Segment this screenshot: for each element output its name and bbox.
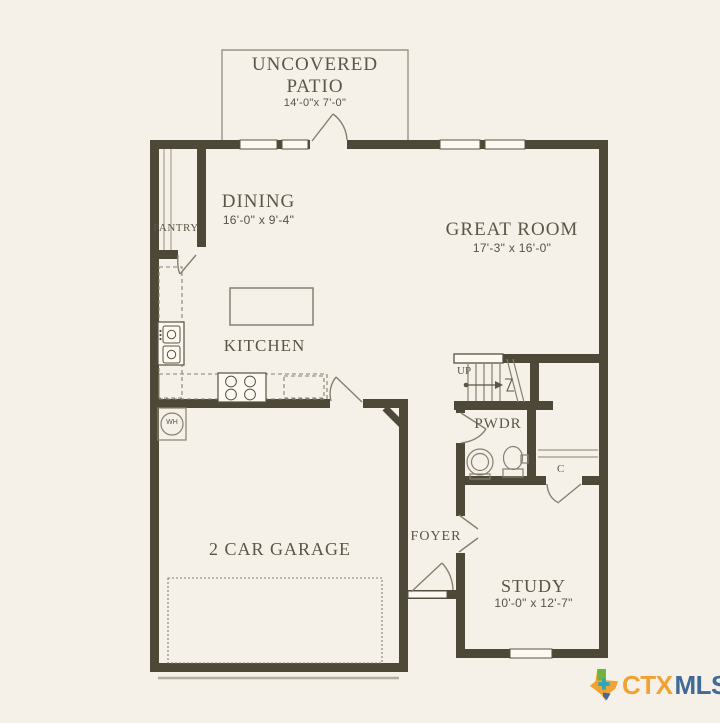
- dining-window: [240, 140, 277, 149]
- patio-dims: 14'-0"x 7'-0": [225, 97, 405, 109]
- foyer-label: FOYER: [398, 529, 474, 546]
- study-dims: 10'-0" x 12'-7": [461, 596, 606, 610]
- greatroom-window-2: [485, 140, 525, 149]
- powder-fixtures: [467, 447, 528, 480]
- stove: [218, 373, 266, 402]
- closet-shelves: [538, 450, 598, 457]
- dining-window-2: [282, 140, 308, 149]
- dining-dims: 16'-0" x 9'-4": [181, 213, 336, 227]
- dining-label: DINING: [181, 191, 336, 213]
- study-window: [510, 649, 552, 658]
- front-door-sill: [408, 591, 447, 598]
- greatroom-window: [440, 140, 480, 149]
- stair-half-wall: [454, 354, 503, 363]
- pantry-door: [178, 255, 196, 274]
- great-room-label: GREAT ROOM: [427, 219, 597, 241]
- floor-plan-page: UNCOVERED PATIO 14'-0"x 7'-0" DINING 16'…: [0, 0, 720, 723]
- front-door: [411, 563, 453, 592]
- up-arrow: [464, 379, 514, 391]
- logo-text-ctx: CTX: [622, 670, 673, 701]
- garage-apron: [168, 578, 382, 663]
- kitchen-island: [230, 288, 313, 325]
- logo-text-mls: MLS: [675, 670, 720, 701]
- closet-label: C: [557, 463, 564, 475]
- texas-icon: [586, 668, 620, 702]
- pedestal-sink: [467, 449, 493, 479]
- stairs: [454, 354, 524, 402]
- patio-label: UNCOVERED PATIO: [225, 54, 405, 99]
- garage-label: 2 CAR GARAGE: [175, 539, 385, 560]
- wall-openings: [310, 139, 582, 553]
- kitchen-sink: [158, 322, 184, 365]
- pantry-label: PANTRY: [149, 222, 203, 235]
- study-label: STUDY: [461, 576, 606, 597]
- ctxmls-logo: CTXMLS: [586, 668, 720, 702]
- patio-door: [312, 114, 347, 141]
- great-room-dims: 17'-3" x 16'-0": [427, 241, 597, 255]
- toilet: [503, 447, 523, 478]
- kitchen-fixtures: [158, 267, 327, 402]
- water-heater-label: WH: [158, 419, 186, 426]
- study-closet-door: [547, 484, 581, 503]
- up-label: UP: [457, 365, 471, 377]
- powder-label: PWDR: [462, 416, 534, 434]
- kitchen-label: KITCHEN: [202, 336, 327, 356]
